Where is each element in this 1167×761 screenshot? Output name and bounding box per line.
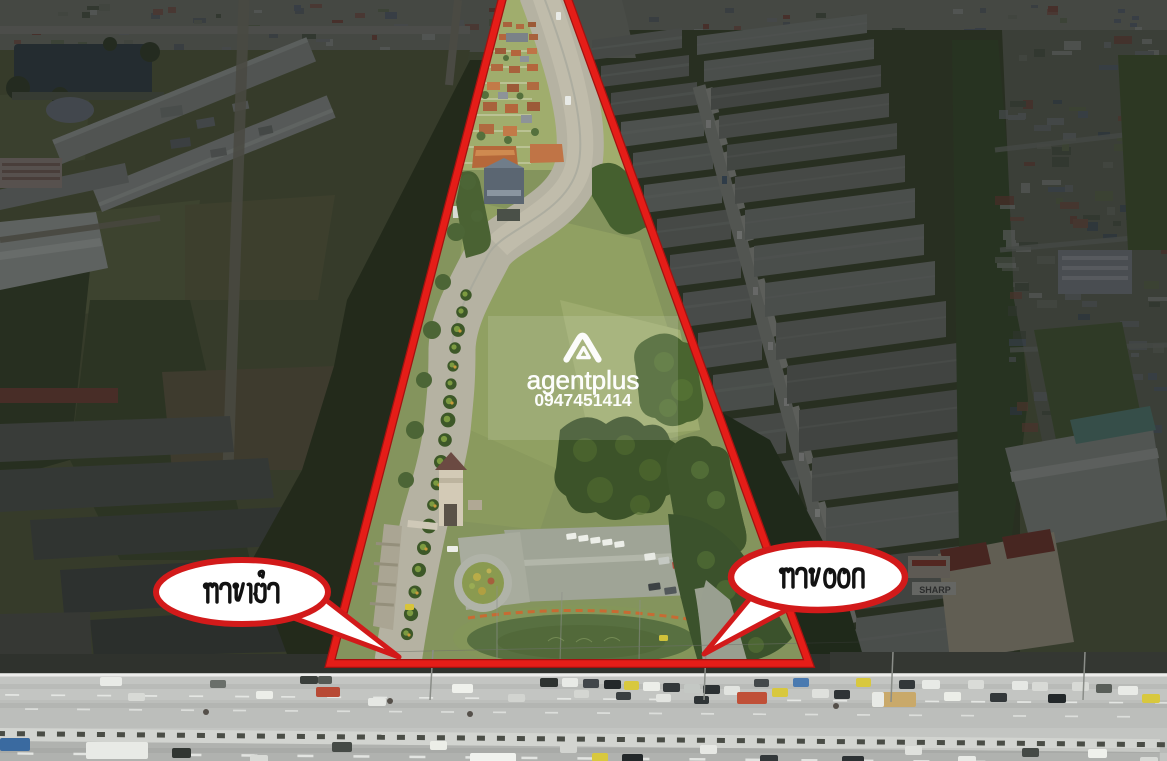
svg-text:0947451414: 0947451414: [534, 390, 632, 410]
